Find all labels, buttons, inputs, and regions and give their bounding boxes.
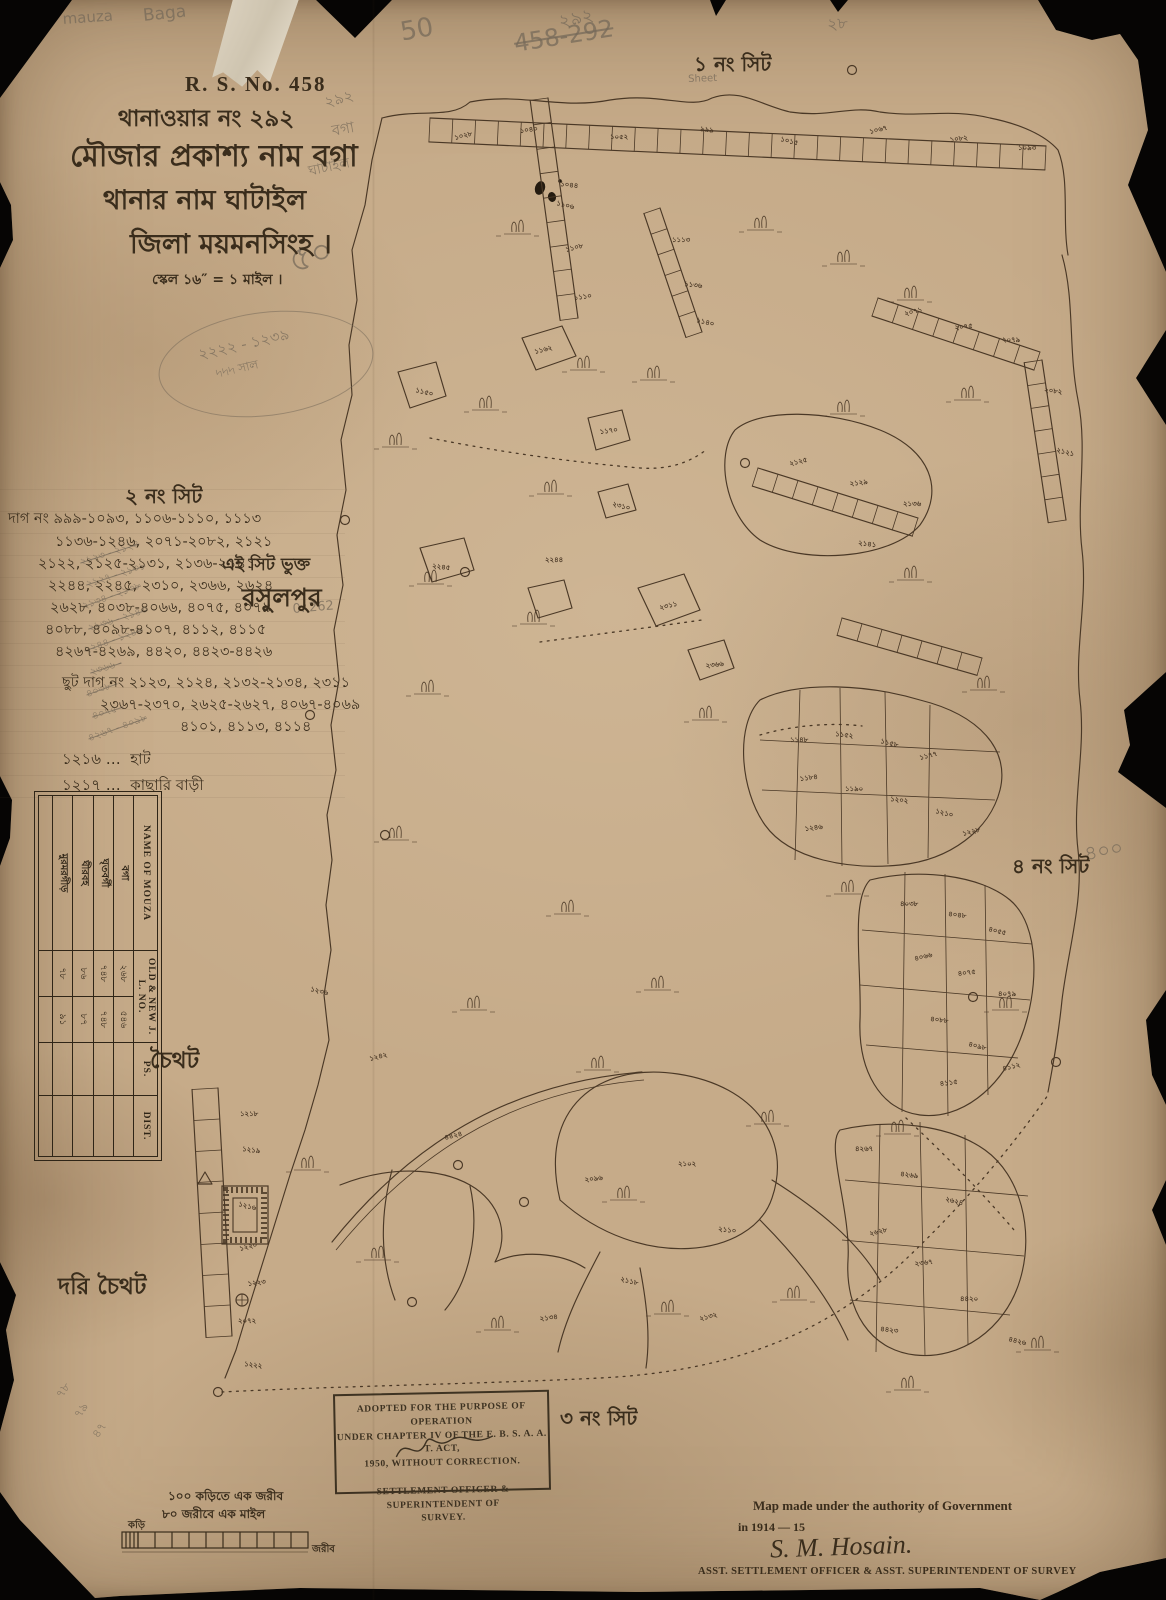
chhut-line: ৪১০১, ৪১১৩, ৪১১৪ [180,716,311,740]
plot-number: ২৩১১ [659,600,679,612]
plot-number: ১১৮৪ [799,773,818,783]
table-header-ps: PS. [134,1043,158,1096]
stamp-line: ADOPTED FOR THE PURPOSE OF OPERATION [335,1400,548,1432]
table-row: বগা২৬৮ ৫৪৬ [113,796,133,1157]
plot-number: ১২৪৬ [804,823,823,833]
plot-number: ১২১৮ [240,1110,259,1118]
plot-cluster-southeast [835,1122,1028,1356]
plot-number: ২৩৬৭ [914,1258,933,1268]
table-header-name: NAME OF MOUZA [134,796,158,951]
tree-icon [962,676,1005,692]
legend-hat: ১২১৬ … হাট [62,748,151,773]
plot-number: ১০১৫ [780,135,800,147]
dag-line: দাগ নং ৯৯৯-১০৯৩, ১১০৬-১১১০, ১১১৩ [8,508,261,532]
plot-number: ২৩১০ [612,500,632,512]
tree-icon [406,680,449,696]
chhut-line: ছুট দাগ নং ২১২৩, ২১২৪, ২১৩২-২১৩৪, ২৩১১ [62,672,350,696]
plot-number: ৪৪২৬ [1008,1335,1028,1347]
tree-icon [452,996,495,1012]
plot-number: ৪২৬৭ [855,1145,873,1153]
sheet-1-label: ১ নং সিট [694,50,771,83]
tree-icon [876,1120,919,1136]
plot-number: ২০৭৯ [1002,336,1021,344]
tree-icon [889,566,932,582]
dag-line: ২৬২৮, ৪০৩৮-৪০৬৬, ৪০৭৫, ৪০৭৯ [50,597,271,621]
tree-icon [822,250,865,266]
tree-icon [476,1316,519,1332]
plot-number: ১২৪২ [369,1051,389,1063]
branch-network-southwest [340,1170,585,1310]
tree-icon [529,480,572,496]
plot-number: ৪০৯৮ [968,1040,988,1052]
survey-node [969,993,978,1002]
plot-number: ২১১৮ [620,1275,640,1287]
plot-number: ৪০৬৬ [914,951,934,963]
plot-number: ১২১০ [935,807,955,819]
plot-number: ২২৪৪ [545,556,563,564]
survey-node [848,66,857,75]
plot-number: ১০৪৪ [560,180,579,190]
plot-number: ১২৩৬ [310,985,330,997]
sheet-3-label: ৩ নং সিট [560,1404,637,1437]
plot-cluster-central [744,687,1002,866]
plot-chain-line [1042,360,1066,520]
place-label-dori-choithot: দরি চৈথট [58,1268,146,1307]
adoption-stamp: ADOPTED FOR THE PURPOSE OF OPERATION UND… [333,1390,551,1495]
plot-number: ৪০৮৮ [930,1015,949,1025]
thana-name-line: থানার নাম ঘাটাইল [103,180,306,225]
survey-node [741,459,750,468]
plot-number: ৪০৩৮ [900,900,919,908]
tree-icon [602,1186,645,1202]
scale-note-1: ১০০ কড়িতে এক জরীব [168,1488,283,1508]
tree-icon [356,1246,399,1262]
plot-number: ১১৪০ [696,316,716,328]
plot-number: ২১১০ [718,1225,737,1235]
plot-number: ২১২১ [1056,446,1076,458]
sheet-4-label: ৪ নং সিট [1012,852,1089,885]
village-blob-south [555,1072,880,1368]
plot-number: ১১৩৬ [684,280,703,290]
tree-icon [822,400,865,416]
plot-number: ২৩৬৬ [705,660,724,670]
plot-number: ১০৬৭ [869,124,889,136]
plot-number: ২১৩৪ [539,1313,558,1323]
stamp-signature-squiggle [391,1427,502,1469]
plot-number: ১২০২ [890,795,909,805]
east-boundary-line [1048,255,1084,1092]
plot-number: ১১৭০ [599,426,618,436]
dag-line: ৪০৮৮, ৪০৯৮-৪১০৭, ৪১১২, ৪১১৫ [45,619,266,643]
plot-number: ১২১৬ [238,1200,258,1212]
tree-icon [546,900,589,916]
plot-number: ২৬২৮ [869,1226,889,1238]
officer-signature: S. M. Hosain. [770,1530,913,1565]
tree-icon [512,610,555,626]
plot-number: ১১৫০ [415,386,435,398]
survey-node [520,1198,529,1207]
road-double-line [332,1072,642,1242]
plot-chain-line [842,618,982,658]
plot-number: ৯৯৯ [700,125,715,135]
plot-number: ২১২৯ [849,478,868,488]
plot-number: ৪০৪৮ [948,910,967,920]
plot-number: ১১৬২ [534,344,554,356]
survey-node [408,1298,417,1307]
plot-number: ১২২২ [244,1360,263,1370]
plot-number: ১০৫২ [610,133,629,141]
plot-number: ২১০২ [678,1160,697,1168]
tree-icon [739,216,782,232]
tree-icon [646,1300,689,1316]
survey-node [341,516,350,525]
tree-icon [984,996,1027,1012]
tree-icon [632,366,675,382]
tree-icon [464,396,507,412]
north-boundary-line [382,95,1068,255]
stamp-line: SETTLEMENT OFFICER & SUPERINTENDENT OF [337,1483,550,1515]
table-row: ঘীরবহ৮৬ ৮৭ [73,796,93,1157]
plot-number: ২১৩৬ [903,500,922,508]
plot-number: ১১১৩ [672,236,691,244]
plot-number: ২১৩২ [699,1311,719,1323]
plot-number: ৪৪২৪ [444,1130,464,1142]
plot-number: ১২২৮ [962,826,982,838]
plot-number: ২৬২৪ [945,1195,965,1207]
mouza-name-line: মৌজার প্রকাশ্য নাম বগা [70,132,358,183]
plot-number: ২১২৫ [789,456,809,468]
tree-icon [374,433,417,449]
table-header-dist: DIST. [134,1096,158,1157]
plot-number: ৪০৫৫ [988,925,1008,937]
tree-icon [746,1110,789,1126]
tree-icon [286,1156,329,1172]
plot-number: ১০৯৩ [1018,144,1037,152]
tree-icon [636,976,679,992]
district-line: জিলা ময়মনসিংহ । [130,224,332,269]
table-row-empty [39,796,53,1157]
plot-number: ৪৪২০ [960,1295,978,1303]
table-header-jlno: OLD & NEW J. L. NO. [134,951,158,1043]
survey-node [214,1388,223,1397]
survey-node [454,1161,463,1170]
rs-number: R. S. No. 458 [185,72,327,97]
pencil-annotation: mauza [62,6,114,27]
chhut-line: ২৩৬৭-২৩৭০, ২৬২৫-২৬২৭, ৪০৬৭-৪০৬৯ [100,694,360,718]
plot-number: ২০৭৫ [954,322,973,332]
table-row: মুরমরগীড়৭৮ ৯১ [53,796,73,1157]
scale-bar [118,1518,318,1558]
tree-icon [772,1286,815,1302]
pencil-annotation: ২৮ [826,10,849,39]
scattered-plots [398,326,734,680]
plot-number: ২০৭২ [238,1317,257,1325]
scanned-map-canvas: ১০২৮১০৪০১০৫২৯৯৯১০১৫১০৬৭১০৮২১০৯৩১০৪৪১১০৬১… [0,0,1166,1600]
dag-line: ৪২৬৭-৪২৬৯, ৪৪২০, ৪৪২৩-৪৪২৬ [55,641,272,665]
tree-icon [889,286,932,302]
tree-icon [684,706,727,722]
plot-number: ৪০৭৫ [957,968,976,978]
survey-node [381,831,390,840]
tree-icon [946,386,989,402]
plot-number: ২১৪১ [858,539,877,549]
tree-icon [496,220,539,236]
plot-number: ১০৪০ [519,125,538,135]
plot-number: ১১৫৮ [880,737,900,749]
plot-number: ২০৯৬ [584,1174,603,1184]
plot-number: ৪৪২৩ [880,1325,899,1335]
west-boundary-line [225,118,382,1378]
plot-number: ৪২৬৯ [900,1170,919,1180]
plot-number: ১১৭৭ [919,750,939,762]
tree-icon [576,1056,619,1072]
plot-number: ১২২৩ [247,1278,266,1288]
plot-number: ৪১১২ [1002,1061,1022,1073]
plot-number: ১১৯০ [845,785,863,793]
side-note: এই সিট ভুক্ত [222,552,310,580]
plot-number: ১১০৬ [556,199,576,211]
plot-number: ১১১০ [573,292,592,302]
south-dotted-boundary [222,1095,1048,1392]
plot-number: ৪১১৫ [939,1078,958,1088]
table-row: ঘৃতবর্গী৭৪৮ ৭৪৮ [93,796,113,1157]
plot-number: ৪০৭৯ [998,990,1017,998]
officer-title-line: ASST. SETTLEMENT OFFICER & ASST. SUPERIN… [698,1566,1077,1577]
mouza-info-table: NAME OF MOUZA OLD & NEW J. L. NO. PS. DI… [38,795,158,1157]
plot-number: ১২১৯ [242,1145,261,1155]
plot-number: ১১৫২ [835,730,854,740]
authority-line: Map made under the authority of Governme… [753,1498,1012,1514]
plot-number: ১০২৮ [454,130,474,142]
pencil-annotation: 50 [398,12,436,47]
scale-line: স্কেল ১৬″ = ১ মাইল । [152,268,282,292]
plot-number: ১১৪৮ [790,736,809,744]
tree-icon [886,1376,929,1392]
village-name-rasulpur: রসুলপুর [242,578,322,621]
